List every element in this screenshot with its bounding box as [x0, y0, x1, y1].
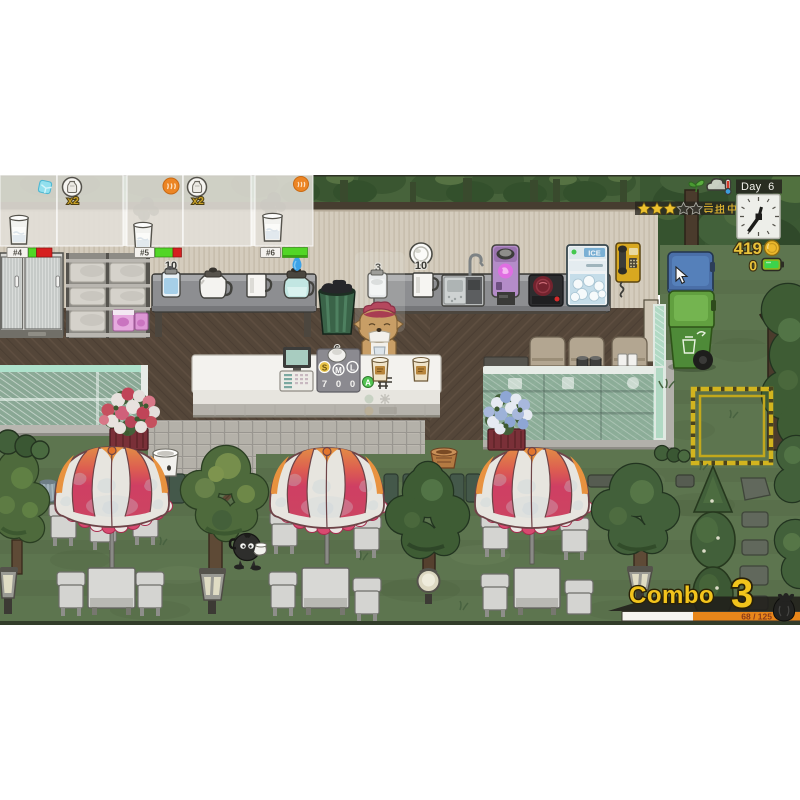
svg-text:10: 10 [415, 260, 427, 272]
svg-text:M: M [335, 366, 342, 375]
svg-text:Combo: Combo [629, 582, 714, 609]
svg-text:7: 7 [322, 379, 327, 390]
svg-text:0: 0 [336, 379, 341, 390]
svg-text:S: S [322, 364, 328, 373]
svg-text:3: 3 [731, 572, 753, 616]
svg-text:419: 419 [734, 239, 762, 258]
svg-text:x2: x2 [67, 195, 79, 207]
svg-text:ICE: ICE [588, 249, 601, 258]
svg-text:0: 0 [350, 379, 355, 390]
svg-text:L: L [350, 364, 355, 373]
svg-text:#6: #6 [266, 249, 275, 258]
svg-text:0: 0 [749, 258, 757, 274]
svg-text:68 / 125: 68 / 125 [741, 612, 772, 622]
svg-text:x2: x2 [192, 195, 204, 207]
svg-text:#4: #4 [13, 249, 22, 258]
svg-text:Day 6: Day 6 [741, 181, 775, 193]
svg-text:#5: #5 [140, 249, 149, 258]
svg-text:A: A [365, 379, 371, 388]
